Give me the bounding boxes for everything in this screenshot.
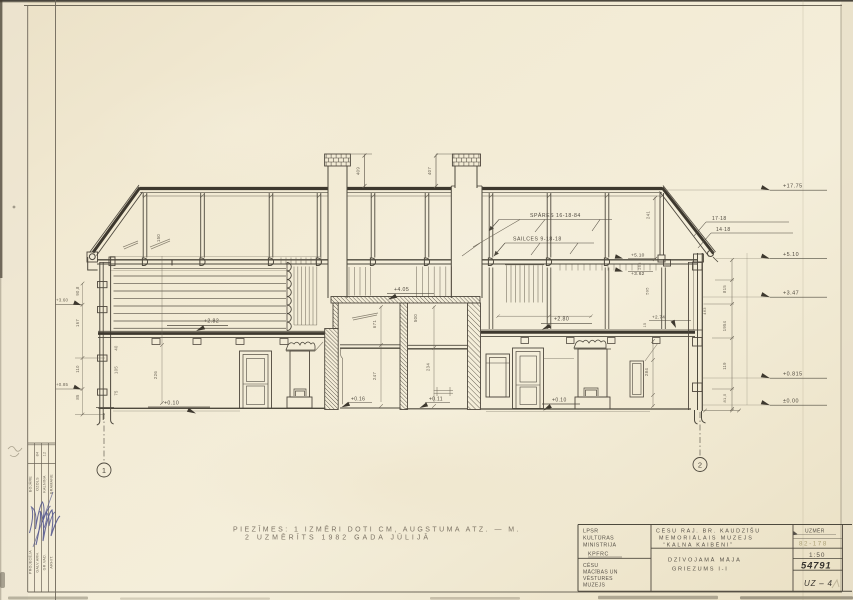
svg-text:85: 85 [75, 394, 80, 400]
svg-text:2 UZMĒRĪTS 1982 GADA JŪLIJĀ: 2 UZMĒRĪTS 1982 GADA JŪLIJĀ [245, 534, 431, 542]
svg-text:+0.10: +0.10 [164, 401, 179, 407]
svg-text:54791: 54791 [801, 560, 831, 571]
svg-text:PIEZĪMES: 1 IZMĒRI DOTI CM, AU: PIEZĪMES: 1 IZMĒRI DOTI CM, AUGSTUMA ATZ… [233, 526, 521, 534]
svg-text:KULTŪRAS: KULTŪRAS [583, 535, 614, 542]
svg-text:119: 119 [722, 362, 727, 370]
svg-text:90,8: 90,8 [75, 286, 80, 296]
svg-text:+0.10: +0.10 [552, 397, 567, 403]
svg-text:12: 12 [43, 452, 47, 457]
svg-text:247: 247 [372, 372, 377, 380]
svg-text:463: 463 [702, 307, 707, 315]
svg-text:BOJĀRE: BOJĀRE [29, 476, 33, 492]
svg-text:17∙18: 17∙18 [712, 216, 727, 222]
svg-text:+3.60: +3.60 [56, 298, 68, 303]
svg-text:409: 409 [356, 167, 361, 175]
svg-text:+4.05: +4.05 [394, 287, 409, 293]
svg-text:150: 150 [156, 234, 161, 242]
svg-text:GR.VAD.: GR.VAD. [43, 554, 47, 571]
svg-text:+2.74: +2.74 [652, 315, 665, 320]
svg-text:MINISTRIJA: MINISTRIJA [583, 542, 616, 548]
svg-text:+3.62: +3.62 [631, 271, 645, 277]
svg-text:+3.47: +3.47 [783, 291, 799, 297]
svg-text:+0.11: +0.11 [429, 397, 443, 403]
svg-text:LPSR: LPSR [583, 529, 598, 535]
svg-text:284: 284 [644, 368, 649, 376]
svg-text:500: 500 [413, 314, 418, 322]
svg-text:84: 84 [36, 452, 40, 457]
svg-text:CĒSU: CĒSU [583, 562, 598, 569]
svg-text:SAILCES 9-18-18: SAILCES 9-18-18 [513, 237, 562, 243]
svg-text:+17.75: +17.75 [783, 184, 803, 190]
svg-text:+0.815: +0.815 [783, 372, 803, 378]
svg-text:407: 407 [427, 167, 432, 175]
svg-text:671: 671 [372, 320, 377, 328]
svg-text:2: 2 [698, 461, 702, 470]
svg-text:BRAMANE: BRAMANE [50, 474, 54, 494]
svg-text:CĒSU RAJ. BR. KAUDZĪŠU: CĒSU RAJ. BR. KAUDZĪŠU [656, 528, 761, 535]
svg-text:15: 15 [643, 323, 647, 328]
svg-text:GALV.ARH.: GALV.ARH. [36, 551, 40, 572]
svg-text:81,5: 81,5 [722, 393, 727, 402]
svg-text:1: 1 [102, 466, 106, 475]
svg-text:255: 255 [637, 262, 642, 270]
svg-text:234: 234 [426, 363, 431, 371]
svg-text:“KALNA KAIBĒNI”: “KALNA KAIBĒNI” [663, 541, 734, 548]
svg-text:105: 105 [114, 366, 119, 374]
svg-text:+5.10: +5.10 [631, 253, 645, 259]
svg-text:MUZEJS: MUZEJS [583, 583, 605, 589]
svg-text:82-178: 82-178 [799, 541, 828, 548]
svg-text:UZ – 4: UZ – 4 [804, 579, 833, 588]
svg-text:UZMĒR: UZMĒR [805, 528, 825, 535]
svg-text:KALNIŅA: KALNIŅA [43, 475, 47, 493]
svg-text:±0.00: ±0.00 [783, 399, 799, 405]
svg-text:ARHIT.: ARHIT. [50, 555, 54, 568]
svg-text:110: 110 [75, 365, 80, 373]
svg-text:14∙18: 14∙18 [716, 227, 731, 233]
svg-text:SPĀRES 16-18-84: SPĀRES 16-18-84 [530, 212, 581, 219]
svg-text:75: 75 [114, 390, 119, 396]
svg-text:1954: 1954 [722, 320, 727, 331]
svg-text:GRIEZUMS I-I: GRIEZUMS I-I [672, 567, 728, 573]
svg-text:OZOLS: OZOLS [36, 477, 40, 491]
svg-text:+5.10: +5.10 [783, 252, 799, 258]
svg-text:DZĪVOJAMĀ MĀJA: DZĪVOJAMĀ MĀJA [668, 557, 742, 564]
svg-text:1:50: 1:50 [809, 552, 825, 559]
svg-text:40: 40 [114, 345, 119, 351]
svg-text:+2.80: +2.80 [554, 316, 569, 322]
svg-text:MEMORIĀLAIS MUZEJS: MEMORIĀLAIS MUZEJS [659, 535, 754, 542]
svg-text:MĀCĪBAS UN: MĀCĪBAS UN [583, 569, 618, 576]
svg-text:241: 241 [646, 211, 651, 219]
svg-text:595: 595 [645, 287, 650, 295]
svg-text:PROJECĒJA: PROJECĒJA [29, 550, 33, 574]
svg-text:+0.85: +0.85 [56, 382, 68, 387]
svg-text:167: 167 [75, 319, 80, 327]
svg-text:KPFRC: KPFRC [588, 552, 609, 558]
svg-text:VĒSTURES: VĒSTURES [583, 575, 613, 582]
svg-text:815: 815 [722, 285, 727, 293]
svg-text:226: 226 [153, 371, 158, 379]
svg-text:+0.16: +0.16 [351, 397, 365, 403]
svg-text:+2.82: +2.82 [204, 319, 219, 325]
